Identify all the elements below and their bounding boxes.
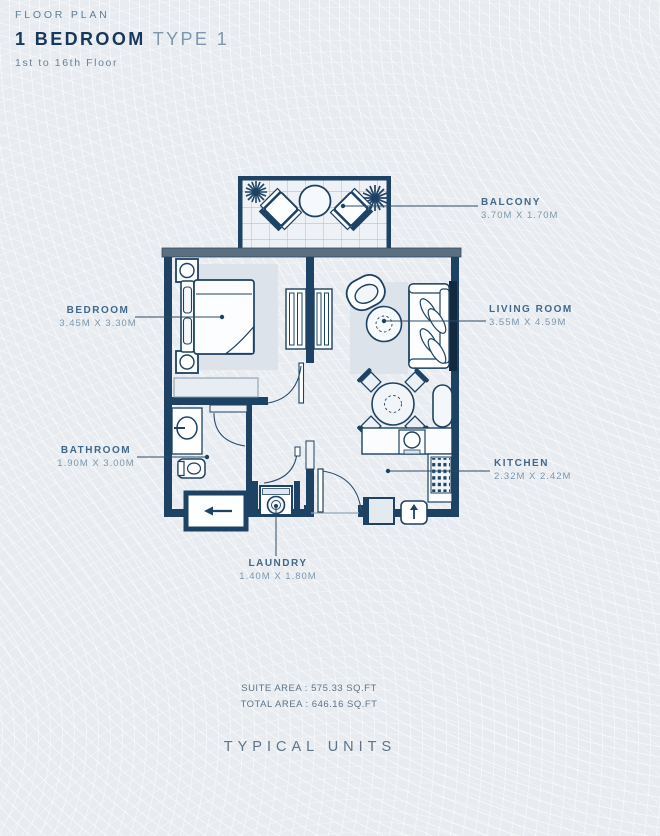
laundry-door <box>264 447 300 483</box>
appliance-icon <box>401 501 427 524</box>
living-room-label: LIVING ROOM 3.55M X 4.59M <box>489 304 573 328</box>
kitchen-name: KITCHEN <box>494 458 571 469</box>
kitchen-label: KITCHEN 2.32M X 2.42M <box>494 458 571 482</box>
bathroom-door <box>210 405 247 446</box>
balcony-name: BALCONY <box>481 197 558 208</box>
total-area-text: TOTAL AREA : 646.16 SQ.FT <box>198 697 420 713</box>
floor-plan-page: FLOOR PLAN 1 BEDROOM TYPE 1 1st to 16th … <box>0 0 660 836</box>
shower-icon <box>186 493 246 529</box>
sink-icon <box>399 430 425 454</box>
balcony-table-icon <box>300 186 331 217</box>
dining-table-icon <box>372 383 414 425</box>
balcony-label: BALCONY 3.70M X 1.70M <box>481 197 558 221</box>
balcony-dims: 3.70M X 1.70M <box>481 210 558 221</box>
kitchen-dims: 2.32M X 2.42M <box>494 471 571 482</box>
vanity-icon <box>172 408 202 454</box>
living-room-dims: 3.55M X 4.59M <box>489 317 573 328</box>
laundry-name: LAUNDRY <box>234 558 322 569</box>
hall-passage-frame <box>306 441 314 469</box>
entry-door <box>318 469 361 512</box>
dresser-icon <box>174 378 258 397</box>
toilet-icon <box>178 459 205 478</box>
sofa-icon <box>409 284 449 368</box>
bedroom-name: BEDROOM <box>52 305 144 316</box>
bedroom-label: BEDROOM 3.45M X 3.30M <box>52 305 144 329</box>
wardrobe-icon <box>314 289 332 349</box>
bathroom-dims: 1.90M X 3.00M <box>48 458 144 469</box>
area-summary: SUITE AREA : 575.33 SQ.FT TOTAL AREA : 6… <box>198 681 420 713</box>
laundry-dims: 1.40M X 1.80M <box>234 571 322 582</box>
bathroom-name: BATHROOM <box>48 445 144 456</box>
living-room-name: LIVING ROOM <box>489 304 573 315</box>
console-icon <box>433 385 452 427</box>
wardrobe-icon <box>286 289 306 349</box>
stove-icon <box>431 457 451 493</box>
coffee-table-icon <box>367 307 402 342</box>
typical-units-label: TYPICAL UNITS <box>149 739 471 755</box>
laundry-label: LAUNDRY 1.40M X 1.80M <box>234 558 322 582</box>
window-strip <box>449 281 457 371</box>
bathroom-label: BATHROOM 1.90M X 3.00M <box>48 445 144 469</box>
bedroom-dims: 3.45M X 3.30M <box>52 318 144 329</box>
balcony-area <box>238 176 391 248</box>
suite-area-text: SUITE AREA : 575.33 SQ.FT <box>198 681 420 697</box>
fridge-icon <box>364 498 394 524</box>
plant-icon <box>245 181 267 203</box>
